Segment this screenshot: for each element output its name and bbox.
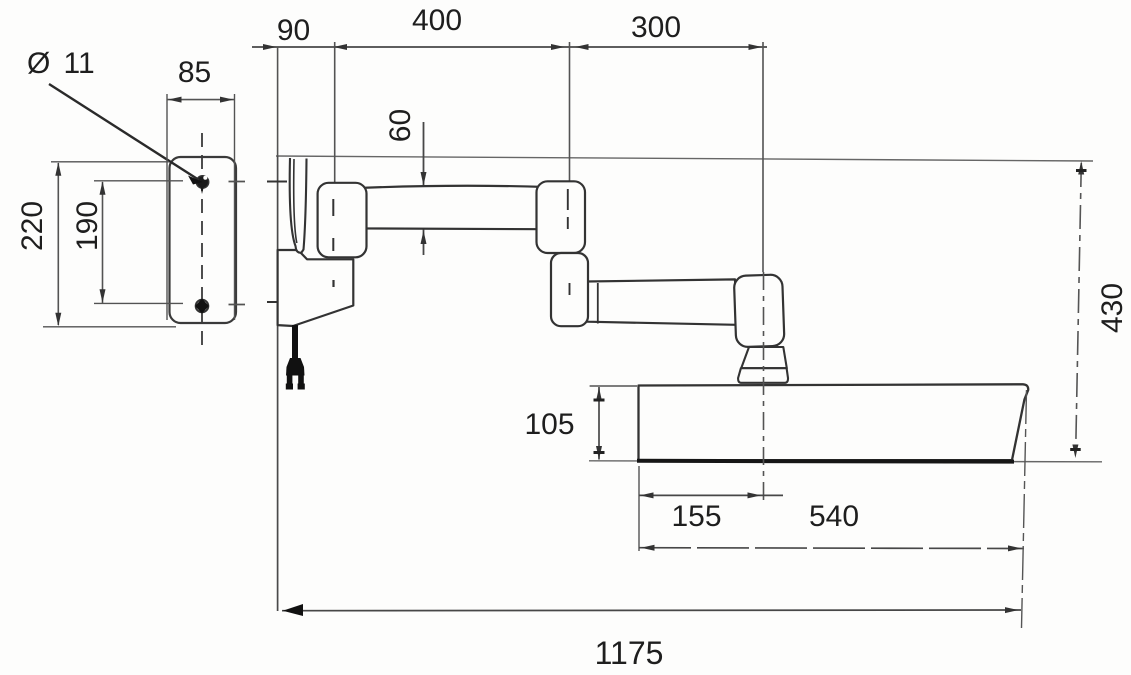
svg-text:90: 90 <box>277 14 310 47</box>
svg-text:300: 300 <box>631 11 681 44</box>
svg-text:190: 190 <box>71 201 104 251</box>
svg-text:60: 60 <box>384 109 417 142</box>
svg-text:430: 430 <box>1096 283 1129 333</box>
svg-text:540: 540 <box>809 500 859 533</box>
svg-text:220: 220 <box>16 201 49 251</box>
svg-text:Ø: Ø <box>27 47 50 80</box>
svg-text:1175: 1175 <box>595 635 664 671</box>
svg-text:400: 400 <box>412 4 462 37</box>
svg-text:85: 85 <box>178 56 211 89</box>
svg-text:155: 155 <box>671 500 721 533</box>
svg-text:11: 11 <box>64 47 95 80</box>
svg-text:105: 105 <box>524 408 574 441</box>
